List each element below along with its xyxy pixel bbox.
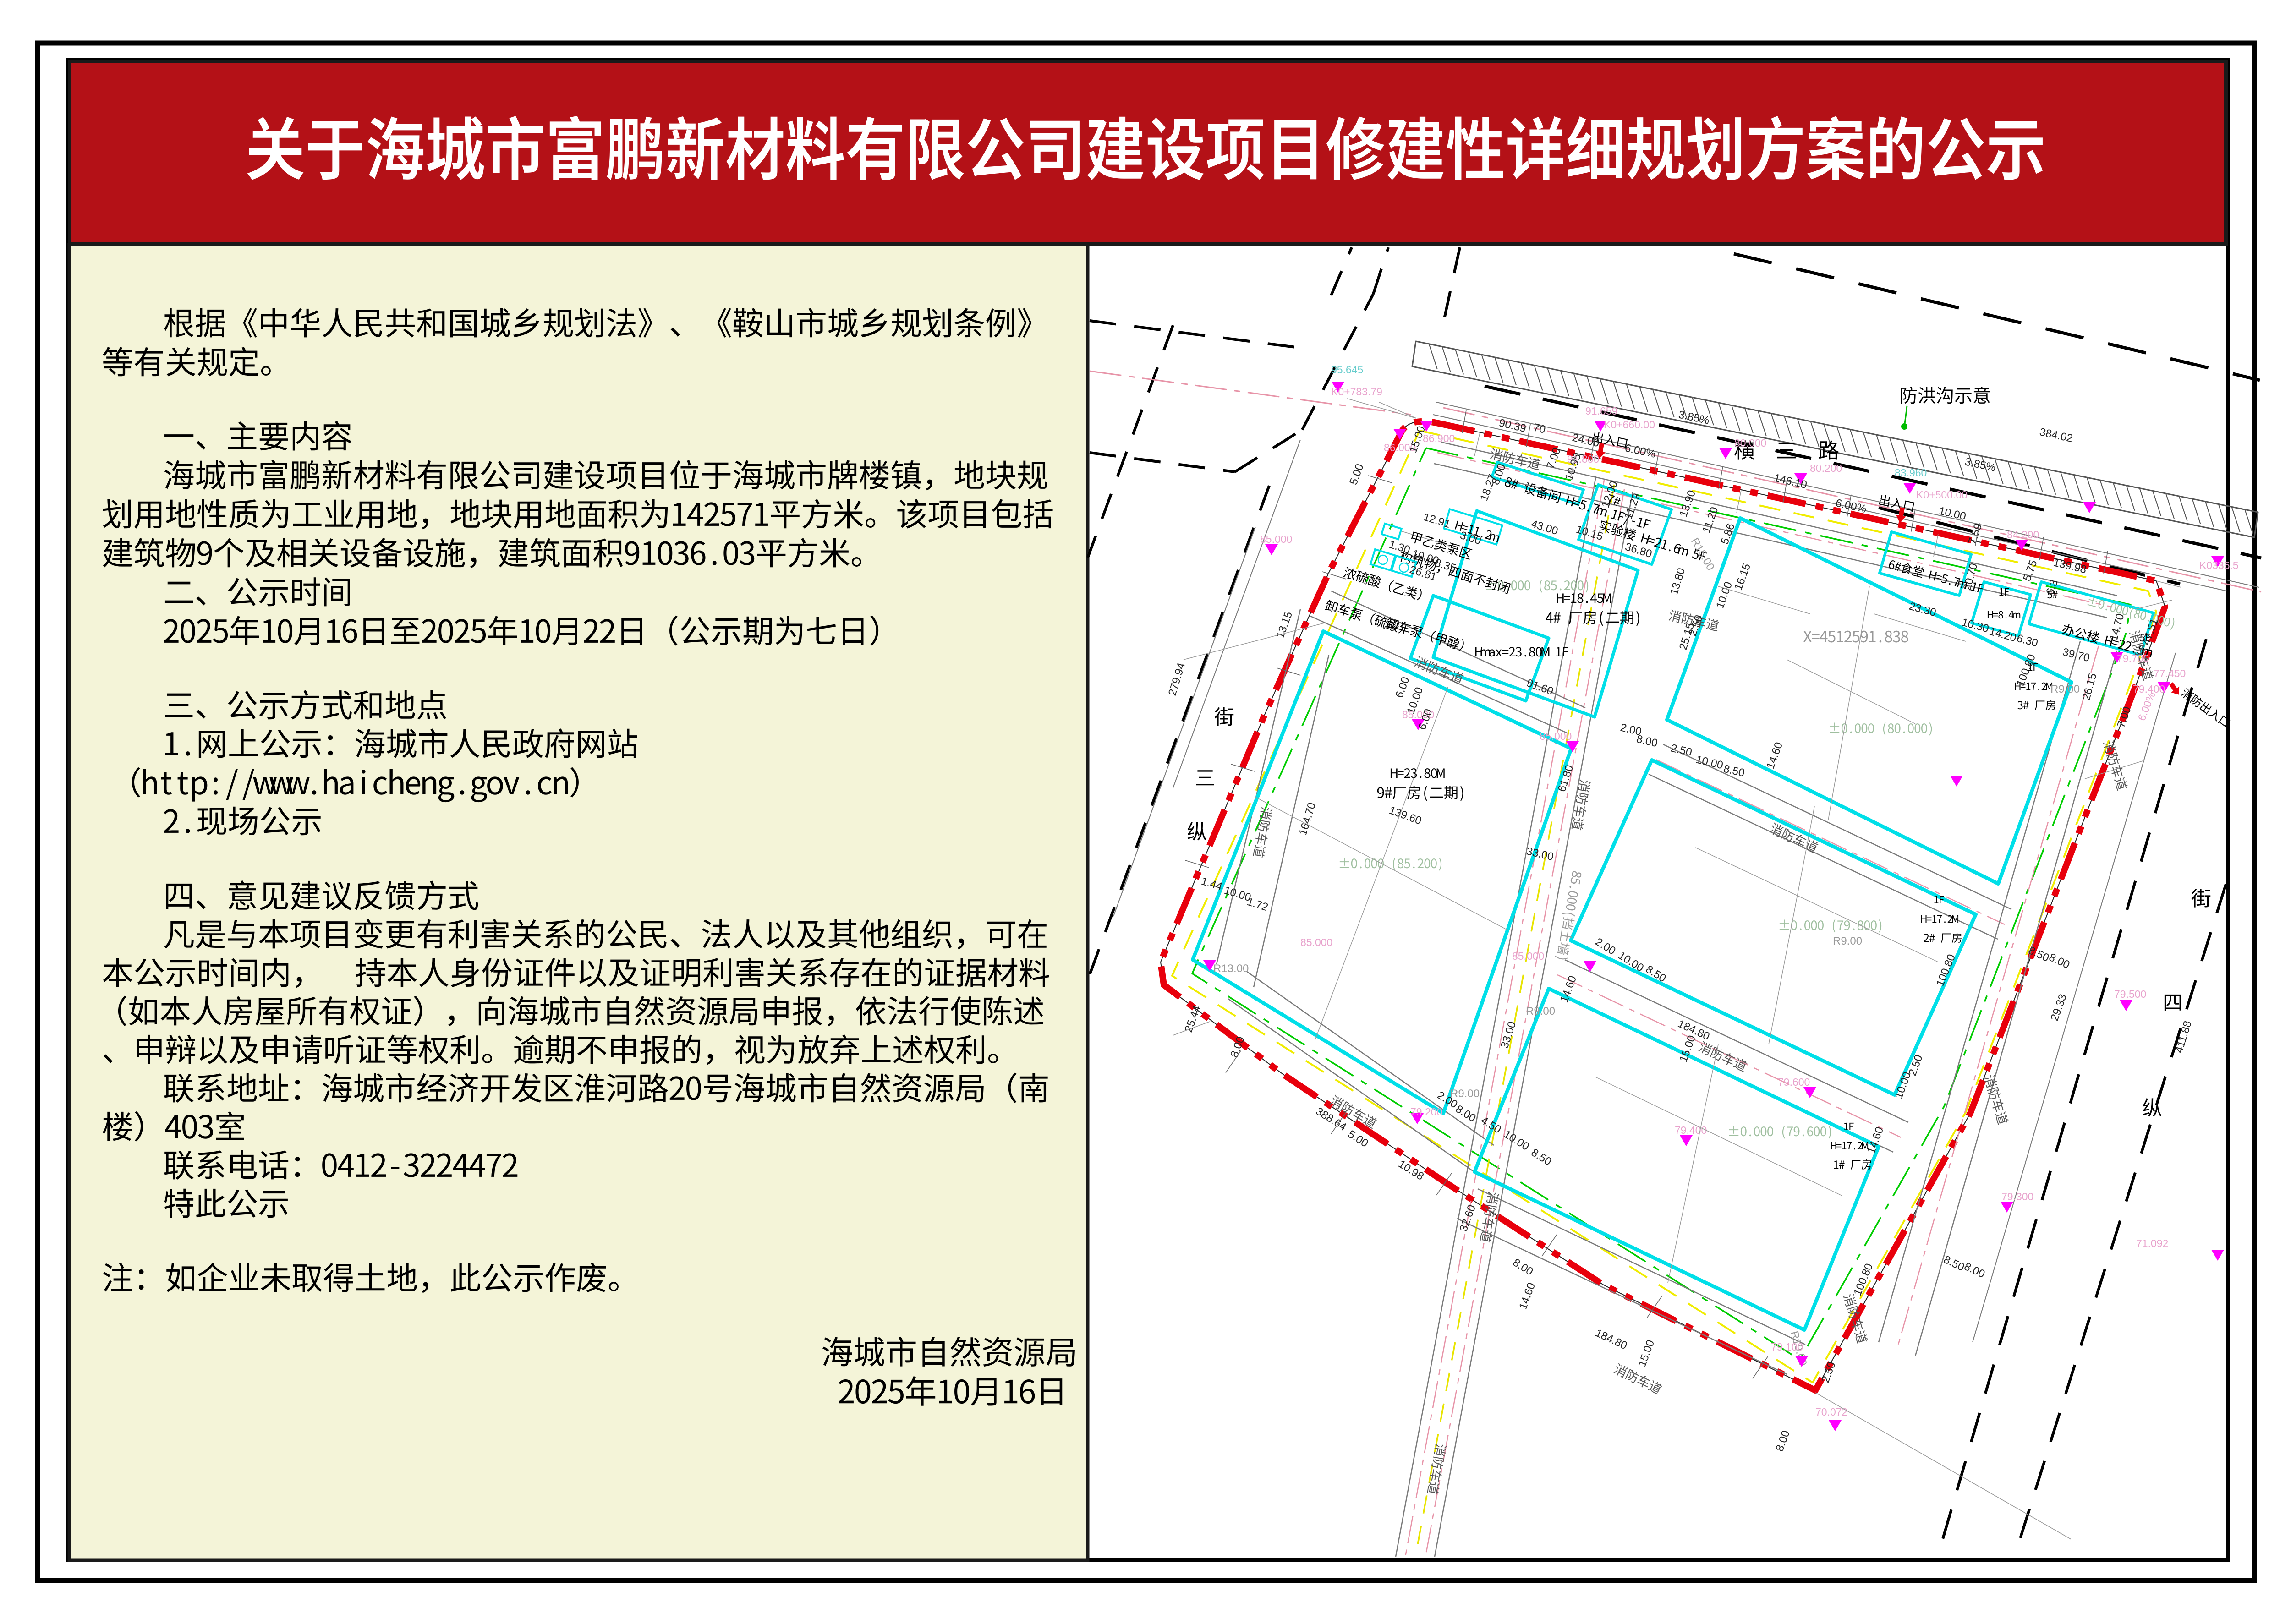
svg-text:79.200: 79.200 (1410, 1106, 1442, 1118)
svg-text:77.450: 77.450 (2154, 667, 2186, 679)
svg-text:85.000: 85.000 (1540, 730, 1572, 742)
svg-text:R13.00: R13.00 (1213, 962, 1249, 975)
svg-text:83.960: 83.960 (1895, 467, 1927, 479)
svg-text:86.900: 86.900 (1423, 432, 1455, 444)
svg-text:K0+783.79: K0+783.79 (1331, 386, 1382, 398)
svg-text:79.500: 79.500 (2114, 988, 2146, 1000)
svg-text:84.200: 84.200 (2007, 529, 2039, 541)
svg-text:R9.00: R9.00 (1833, 935, 1862, 947)
svg-text:79.300: 79.300 (2001, 1191, 2033, 1203)
svg-text:85.000: 85.000 (1260, 533, 1292, 545)
svg-text:80.000: 80.000 (1734, 437, 1766, 449)
svg-text:85.000: 85.000 (1300, 936, 1332, 948)
svg-text:79.700: 79.700 (2117, 652, 2149, 664)
svg-text:R9.00: R9.00 (1526, 1005, 1555, 1017)
svg-text:80.200: 80.200 (1810, 462, 1842, 474)
svg-text:K0+500.00: K0+500.00 (1916, 489, 1968, 501)
svg-text:70.072: 70.072 (1815, 1406, 1847, 1418)
svg-text:95.645: 95.645 (1331, 364, 1363, 376)
svg-text:85.000: 85.000 (1512, 950, 1544, 962)
svg-text:71.092: 71.092 (2136, 1237, 2168, 1249)
svg-text:79.100: 79.100 (1771, 1341, 1803, 1353)
svg-text:79.600: 79.600 (1778, 1076, 1810, 1088)
svg-text:R9.00: R9.00 (2050, 683, 2080, 695)
svg-text:K0+660.00: K0+660.00 (1604, 419, 1655, 431)
svg-text:91.659: 91.659 (1585, 405, 1617, 417)
svg-text:79.400: 79.400 (1675, 1124, 1707, 1136)
svg-text:K0336.5: K0336.5 (2199, 559, 2239, 571)
